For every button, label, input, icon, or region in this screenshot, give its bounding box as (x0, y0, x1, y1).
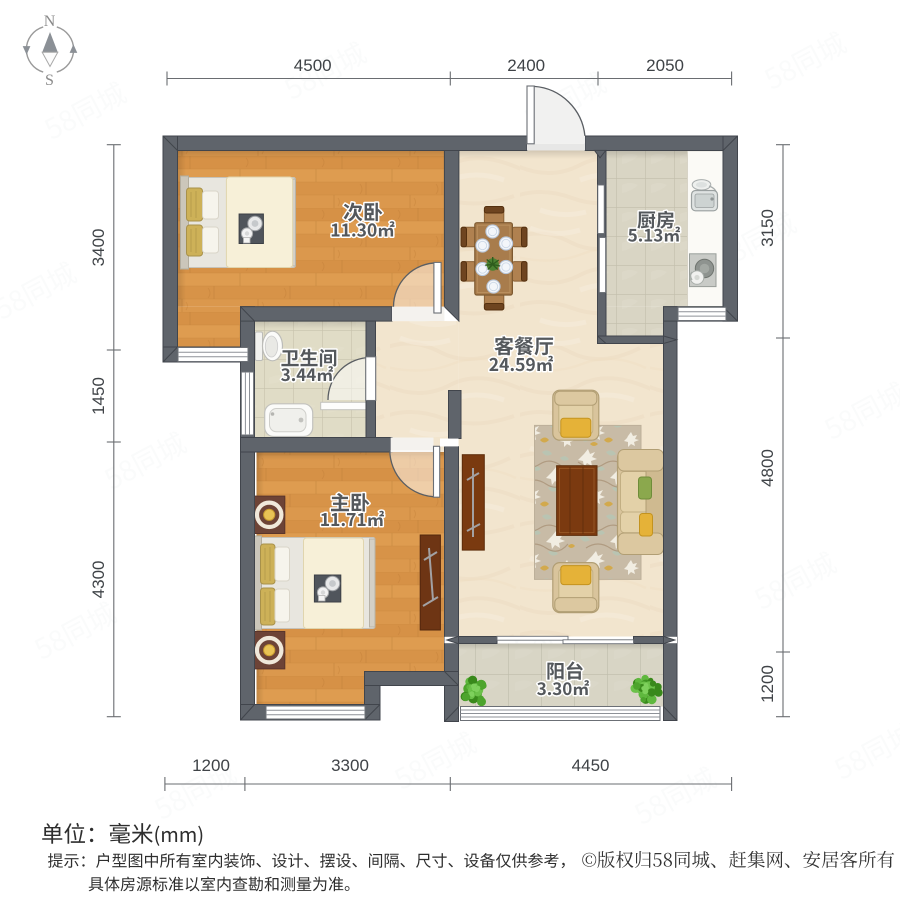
svg-text:N: N (44, 13, 56, 30)
svg-text:2050: 2050 (646, 56, 684, 75)
svg-text:3150: 3150 (758, 209, 777, 247)
svg-text:S: S (45, 72, 54, 89)
svg-text:1200: 1200 (758, 665, 777, 703)
svg-text:4800: 4800 (758, 449, 777, 487)
svg-text:4300: 4300 (89, 560, 108, 598)
svg-text:2400: 2400 (507, 56, 545, 75)
svg-text:4500: 4500 (294, 56, 332, 75)
svg-text:3300: 3300 (331, 756, 369, 775)
svg-text:1200: 1200 (192, 756, 230, 775)
svg-text:1450: 1450 (89, 377, 108, 415)
svg-text:3400: 3400 (89, 228, 108, 266)
svg-text:4450: 4450 (572, 756, 610, 775)
